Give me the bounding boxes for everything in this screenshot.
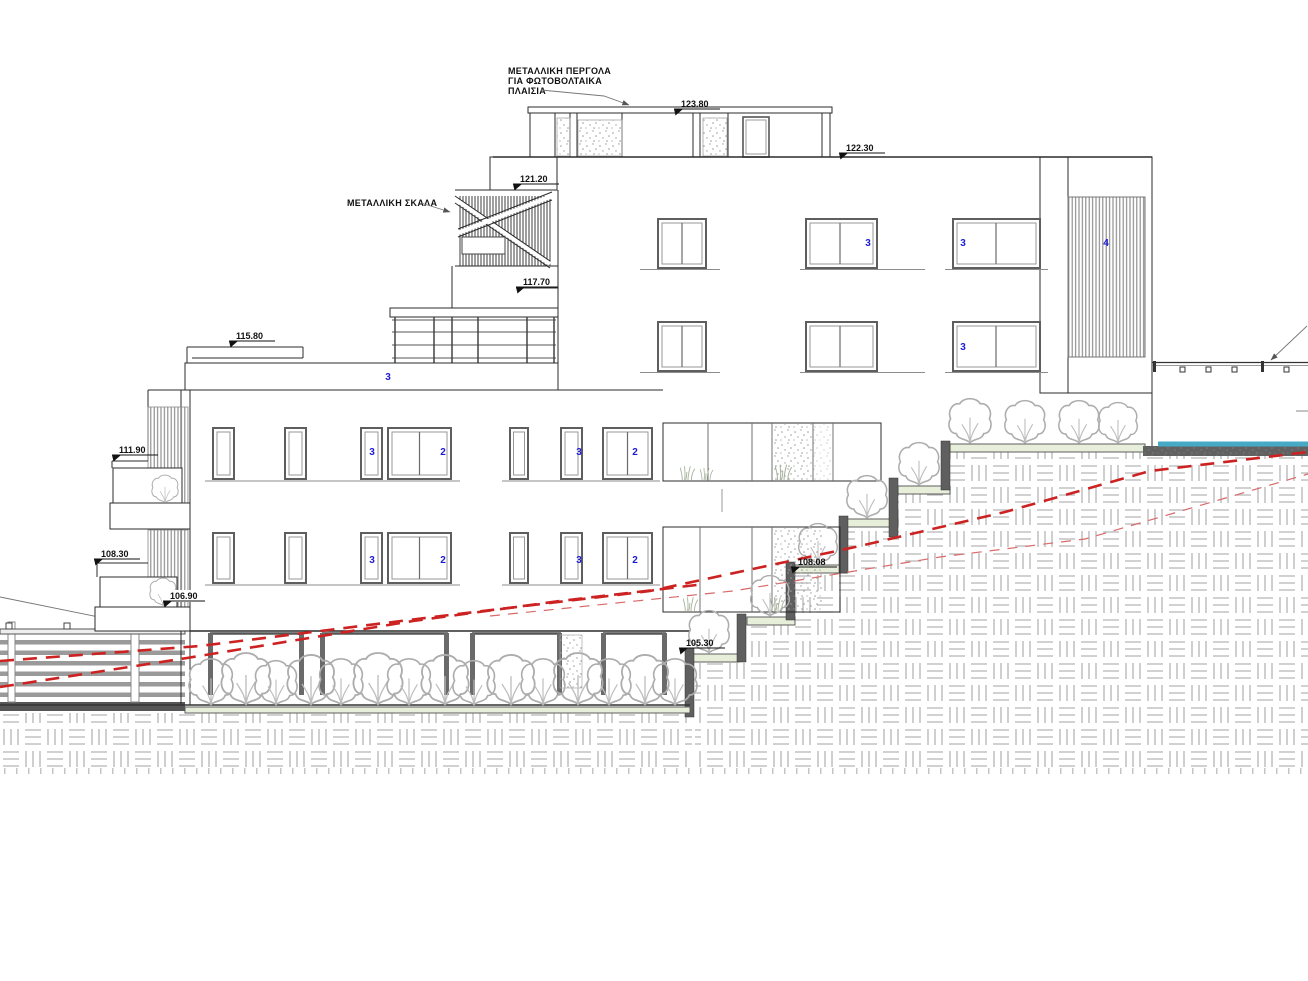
railing-foot — [1180, 367, 1185, 372]
deck-railing — [392, 320, 556, 358]
balcony-slab-upper — [110, 503, 190, 529]
svg-text:105.30: 105.30 — [686, 638, 714, 648]
parapet-tag: 3 — [385, 372, 391, 383]
window-tag: 3 — [576, 447, 582, 458]
retaining-wall-post — [889, 478, 898, 537]
window — [213, 533, 234, 583]
svg-text:121.20: 121.20 — [520, 174, 548, 184]
level-marker-stair-top: 121.20 — [513, 174, 559, 191]
louver-tag: 4 — [1103, 238, 1109, 249]
svg-text:122.30: 122.30 — [846, 143, 874, 153]
low-roof-edges — [187, 347, 303, 363]
retaining-wall-post — [737, 614, 746, 662]
window-tag: 2 — [632, 447, 638, 458]
svg-text:108.30: 108.30 — [101, 549, 129, 559]
window — [953, 219, 1040, 268]
window-tag: 3 — [369, 555, 375, 566]
window — [603, 428, 652, 479]
fence-post — [131, 634, 139, 702]
boundary-wall-base — [0, 702, 185, 711]
pool-deck-speckle — [1143, 446, 1308, 456]
window-tag: 3 — [576, 555, 582, 566]
glazed-stairwell-lower — [663, 527, 840, 612]
window-tag: 3 — [369, 447, 375, 458]
elevation-drawing-canvas: ΜΕΤΑΛΛΙΚΗ ΠΕΡΓΟΛΑ ΓΙΑ ΦΩΤΟΒΟΛΤΑΙΚΑ ΠΛΑΙΣ… — [0, 0, 1308, 981]
fence-slat — [0, 693, 185, 698]
svg-text:123.80: 123.80 — [681, 99, 709, 109]
balcony-step-upper — [112, 461, 148, 468]
window-tag: 3 — [960, 342, 966, 353]
terrace-railing — [1152, 326, 1308, 372]
window — [658, 219, 706, 268]
stair-landing — [462, 237, 505, 254]
window — [510, 428, 528, 479]
stone-panel — [557, 118, 570, 156]
window — [658, 322, 706, 371]
fence-cap — [64, 623, 70, 629]
stone-panel — [578, 120, 622, 156]
balcony-slab-lower — [95, 607, 190, 631]
building-elevation-svg: ΜΕΤΑΛΛΙΚΗ ΠΕΡΓΟΛΑ ΓΙΑ ΦΩΤΟΒΟΛΤΑΙΚΑ ΠΛΑΙΣ… — [0, 0, 1308, 981]
step-tread — [950, 444, 1145, 452]
svg-text:115.80: 115.80 — [236, 331, 263, 341]
water-strip — [1158, 442, 1308, 447]
railing-foot — [1206, 367, 1211, 372]
svg-text:108.08: 108.08 — [798, 557, 826, 567]
window — [510, 533, 528, 583]
penthouse-door-frame — [746, 120, 766, 154]
svg-text:111.90: 111.90 — [119, 445, 146, 455]
window-tag: 2 — [632, 555, 638, 566]
glazed-stairwell-upper — [663, 423, 881, 481]
balcony-step-lower — [97, 563, 148, 577]
railing-post — [1153, 361, 1156, 372]
tower-louver-screen — [1068, 197, 1145, 357]
roof-deck — [390, 288, 558, 363]
pergola-leader-line — [541, 90, 629, 105]
railing-post — [1261, 361, 1264, 372]
pergola-label-line1: ΜΕΤΑΛΛΙΚΗ ΠΕΡΓΟΛΑ — [508, 66, 611, 76]
window-tag: 3 — [960, 238, 966, 249]
window — [285, 428, 306, 479]
svg-text:117.70: 117.70 — [523, 277, 550, 287]
ground-hatch-left — [0, 713, 692, 768]
ground-hatch — [0, 449, 1308, 771]
window — [806, 322, 877, 371]
fence-slat — [0, 640, 185, 645]
fence-cap — [6, 623, 12, 629]
retaining-wall-post — [941, 441, 950, 490]
window-tag: 2 — [440, 555, 446, 566]
railing-foot — [1232, 367, 1237, 372]
window-tag: 2 — [440, 447, 446, 458]
step-tread — [693, 654, 739, 662]
window — [953, 322, 1040, 371]
window — [603, 533, 652, 583]
pergola-label-line3: ΠΛΑΙΣΙΑ — [508, 86, 546, 96]
window — [285, 533, 306, 583]
window — [213, 428, 234, 479]
parapet-band — [185, 363, 558, 390]
deck-slab — [390, 308, 558, 317]
svg-text:106.90: 106.90 — [170, 591, 198, 601]
level-marker-low-roof: 115.80 — [229, 331, 275, 348]
penthouse-block — [530, 113, 830, 157]
fence-slat — [0, 661, 185, 666]
balcony-parapet-upper — [113, 468, 182, 503]
ground-green-strip — [185, 707, 690, 713]
window-tag: 3 — [865, 238, 871, 249]
deck-railing-posts — [395, 317, 554, 363]
pergola-label-line2: ΓΙΑ ΦΩΤΟΒΟΛΤΑΙΚΑ — [508, 76, 602, 86]
railing-foot — [1284, 367, 1289, 372]
stair-label: ΜΕΤΑΛΛΙΚΗ ΣΚΑΛΑ — [347, 198, 437, 208]
level-marker-deck: 117.70 — [516, 277, 558, 294]
railing-leader-line — [1271, 326, 1307, 360]
stone-panel — [703, 118, 727, 156]
